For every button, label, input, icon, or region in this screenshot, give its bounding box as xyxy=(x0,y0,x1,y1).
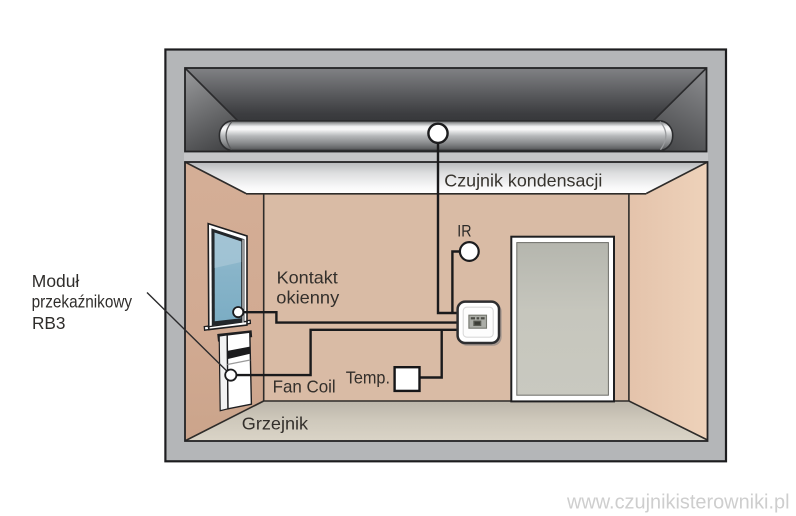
svg-text:Fan Coil: Fan Coil xyxy=(273,376,336,396)
svg-text:RB3: RB3 xyxy=(32,313,66,333)
svg-text:Kontakt: Kontakt xyxy=(277,268,338,288)
svg-text:Temp.: Temp. xyxy=(346,367,390,387)
svg-text:przekaźnikowy: przekaźnikowy xyxy=(32,292,133,312)
svg-text:Czujnik kondensacji: Czujnik kondensacji xyxy=(444,171,602,191)
svg-text:IR: IR xyxy=(457,222,471,241)
svg-text:www.czujnikisterowniki.pl: www.czujnikisterowniki.pl xyxy=(566,490,789,513)
svg-text:Moduł: Moduł xyxy=(32,271,80,291)
svg-text:okienny: okienny xyxy=(276,287,339,307)
svg-text:Grzejnik: Grzejnik xyxy=(242,414,308,434)
